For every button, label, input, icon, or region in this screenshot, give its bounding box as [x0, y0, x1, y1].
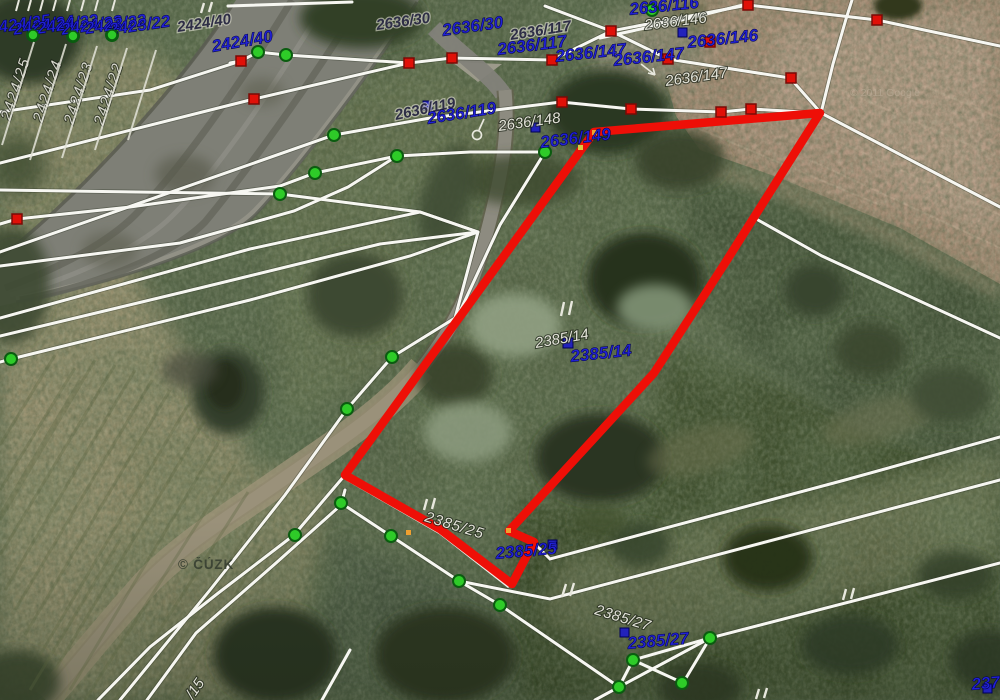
svg-text:© ČÚZK: © ČÚZK [178, 557, 234, 572]
svg-text:© 2011 Google: © 2011 Google [850, 87, 920, 99]
svg-text:237: 237 [970, 672, 1000, 694]
